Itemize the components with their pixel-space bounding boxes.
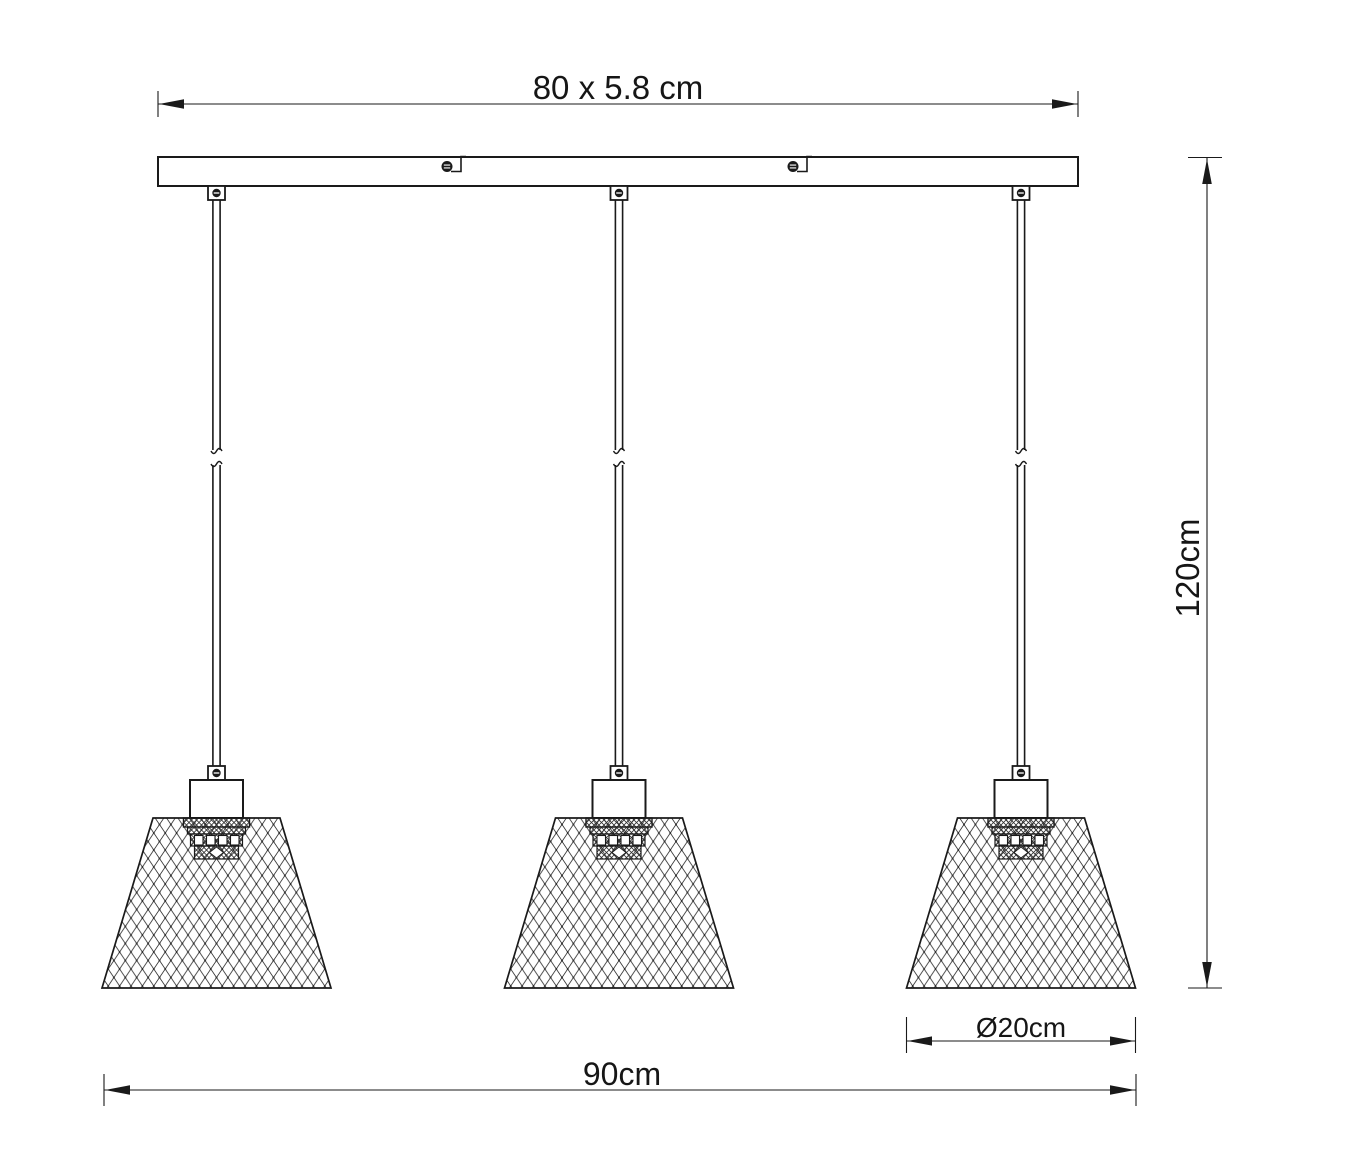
shade-diameter-label: Ø20cm: [976, 1012, 1066, 1043]
drawing-svg: 80 x 5.8 cm 120cm Ø20cm 90cm: [0, 0, 1346, 1176]
canopy-size-label: 80 x 5.8 cm: [533, 69, 704, 106]
total-height-label: 120cm: [1169, 518, 1206, 617]
total-width-label: 90cm: [583, 1056, 661, 1092]
lamp-dimension-drawing: 80 x 5.8 cm 120cm Ø20cm 90cm: [0, 0, 1346, 1176]
ceiling-canopy: [158, 157, 1078, 186]
